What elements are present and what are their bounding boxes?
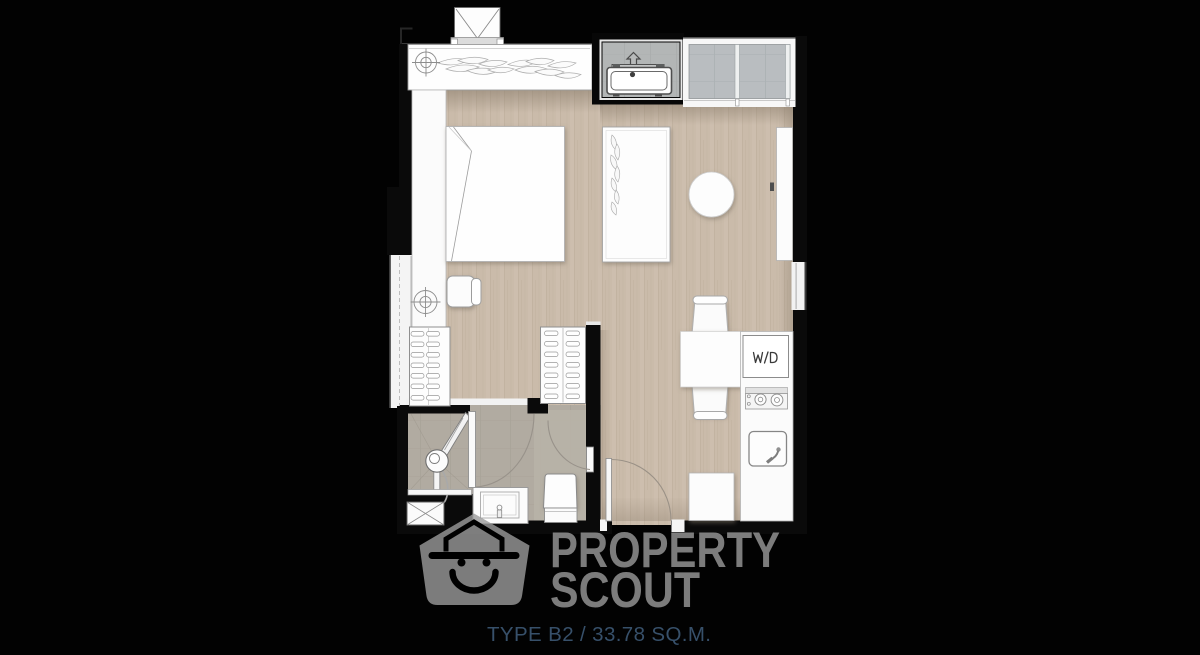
svg-text:SCOUT: SCOUT: [550, 561, 700, 618]
svg-text:TYPE B2 / 33.78 SQ.M.: TYPE B2 / 33.78 SQ.M.: [487, 623, 711, 646]
